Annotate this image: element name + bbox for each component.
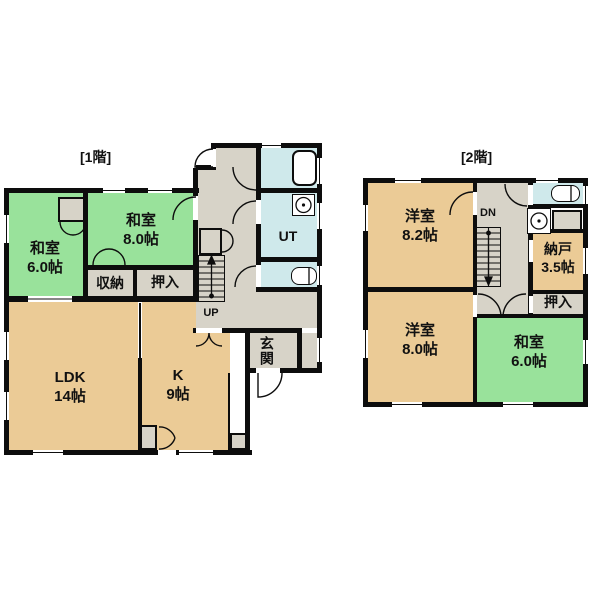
wall bbox=[256, 257, 322, 262]
wall bbox=[256, 287, 322, 292]
window bbox=[148, 188, 172, 193]
door-gap bbox=[473, 295, 477, 317]
window bbox=[317, 266, 322, 285]
wall bbox=[473, 183, 477, 402]
label-2f-dn: DN bbox=[480, 206, 496, 220]
window bbox=[503, 402, 533, 407]
door-gap bbox=[193, 196, 198, 220]
window bbox=[317, 158, 322, 184]
wall bbox=[363, 287, 477, 292]
label-1f-ldk: LDK 14帖 bbox=[54, 368, 86, 406]
label-1f-kitchen: K 9帖 bbox=[166, 366, 189, 404]
porch-line bbox=[228, 373, 230, 450]
window bbox=[4, 392, 9, 420]
door-gap bbox=[158, 450, 176, 455]
door-gap bbox=[302, 328, 317, 333]
door-gap bbox=[211, 149, 216, 167]
label-1f-genkan: 玄関 bbox=[257, 336, 275, 366]
window bbox=[392, 402, 422, 407]
wall bbox=[88, 265, 196, 270]
closet-1f-washitsu6 bbox=[58, 197, 86, 222]
floor2-label: [2階] bbox=[461, 149, 492, 167]
toilet-icon-1f bbox=[291, 267, 317, 285]
window bbox=[583, 186, 588, 204]
label-1f-washitsu6: 和室 6.0帖 bbox=[27, 239, 63, 277]
label-2f-nando: 納戸 3.5帖 bbox=[541, 241, 574, 277]
window bbox=[317, 203, 322, 229]
sliding-door bbox=[28, 296, 72, 302]
door-gap bbox=[528, 185, 533, 205]
genkan-post bbox=[297, 333, 302, 368]
wall-ldk-k bbox=[138, 358, 142, 450]
stairs-1f bbox=[198, 255, 225, 302]
window bbox=[4, 215, 9, 243]
door-gap bbox=[196, 328, 222, 333]
kitchen-counter bbox=[140, 425, 157, 450]
washer-box-1f bbox=[292, 194, 315, 216]
window bbox=[363, 205, 368, 231]
label-2f-yoshitsu80: 洋室 8.0帖 bbox=[402, 321, 438, 359]
window bbox=[4, 332, 9, 360]
wall bbox=[256, 188, 322, 193]
door-gap bbox=[529, 240, 533, 262]
washer-box-2f bbox=[527, 208, 551, 234]
toilet-icon-2f bbox=[551, 185, 580, 202]
bathtub-icon bbox=[292, 150, 317, 186]
window bbox=[33, 450, 63, 455]
window bbox=[536, 178, 558, 183]
floor-plan-canvas: [1階] [2階] 和室 6.0帖 和室 8.0帖 収納 押入 LDK 14帖 … bbox=[0, 0, 600, 600]
door-gap bbox=[529, 296, 533, 313]
wall bbox=[245, 333, 250, 455]
closet-1f-hall bbox=[199, 228, 222, 255]
label-1f-shuno: 収納 bbox=[96, 275, 124, 293]
window bbox=[317, 338, 322, 362]
door-gap bbox=[256, 368, 280, 373]
wall bbox=[193, 168, 198, 302]
label-1f-oshiire: 押入 bbox=[151, 274, 179, 292]
floor1-label: [1階] bbox=[80, 149, 111, 167]
label-2f-yoshitsu82: 洋室 8.2帖 bbox=[402, 207, 438, 245]
label-1f-washitsu8: 和室 8.0帖 bbox=[123, 211, 159, 249]
window bbox=[583, 340, 588, 364]
wall bbox=[583, 178, 588, 407]
door-gap bbox=[256, 265, 261, 287]
window bbox=[262, 143, 281, 148]
door-gap bbox=[256, 200, 261, 224]
window bbox=[103, 188, 125, 193]
window bbox=[395, 178, 421, 183]
label-1f-ut: UT bbox=[279, 228, 298, 246]
window bbox=[363, 330, 368, 358]
window bbox=[583, 248, 588, 274]
counter-line bbox=[139, 303, 141, 358]
label-1f-up: UP bbox=[203, 306, 218, 320]
door-arc-front-entry bbox=[258, 373, 282, 397]
wall bbox=[83, 192, 88, 302]
label-2f-washitsu6: 和室 6.0帖 bbox=[511, 333, 547, 371]
label-2f-oshiire: 押入 bbox=[544, 294, 572, 312]
window bbox=[179, 450, 213, 455]
door-gap bbox=[473, 192, 477, 215]
stairs-2f bbox=[476, 227, 501, 287]
